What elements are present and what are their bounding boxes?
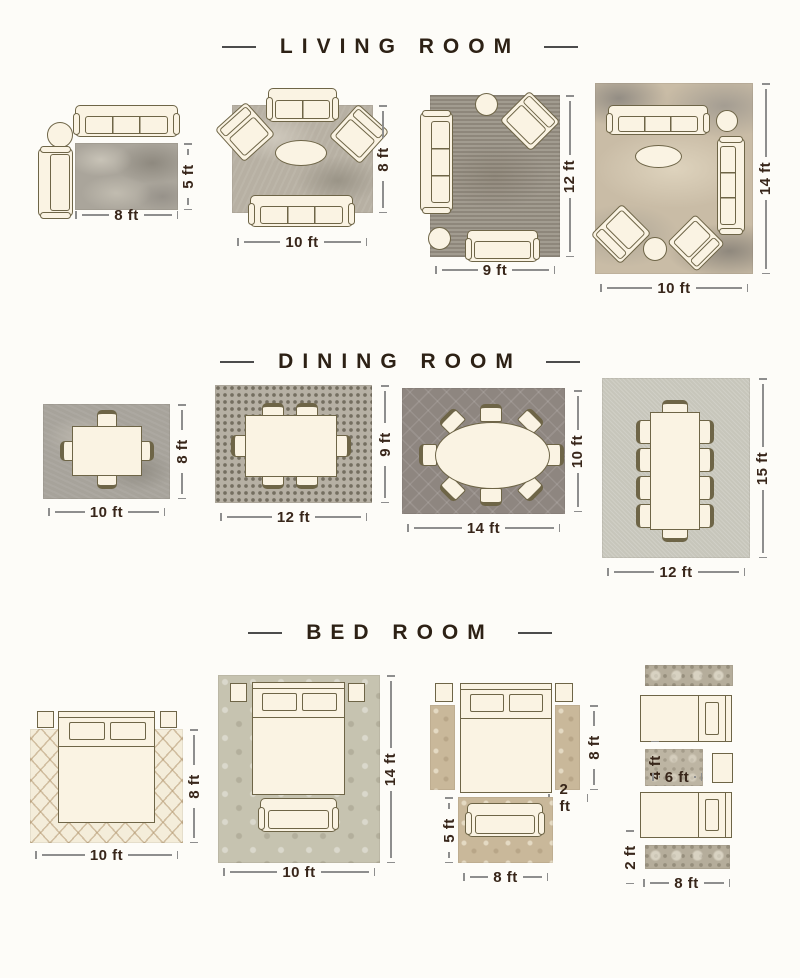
pillow [705, 702, 719, 735]
blanket-edge [698, 696, 699, 741]
runner-length-dimension: 8 ft [643, 875, 730, 891]
rug-size-guide-infographic: LIVING ROOM 8 ft 5 ft 10 ft 8 ft 9 ft 12… [0, 0, 800, 978]
blanket-edge [698, 793, 699, 837]
dimension-line [694, 776, 695, 778]
runner-bottom [645, 845, 730, 869]
dimension-line [704, 882, 724, 884]
twin-bed-top [640, 695, 732, 742]
dimension-line [650, 882, 670, 884]
runner-width-label: 2 ft [622, 845, 639, 870]
pillow [705, 799, 719, 831]
twin-bed-bottom [640, 792, 732, 838]
nightstand [712, 753, 733, 783]
dimension-line [659, 776, 660, 778]
accent-rug-width-dimension: 6 ft [652, 769, 702, 785]
runner-length-label: 8 ft [674, 875, 699, 892]
runner-width-dimension: 2 ft [622, 840, 638, 874]
accent-rug-width-label: 6 ft [665, 769, 690, 786]
runner-top [645, 665, 733, 686]
bed-room-layout-twin-beds: 4 ft 6 ft 2 ft 8 ft [0, 0, 800, 978]
